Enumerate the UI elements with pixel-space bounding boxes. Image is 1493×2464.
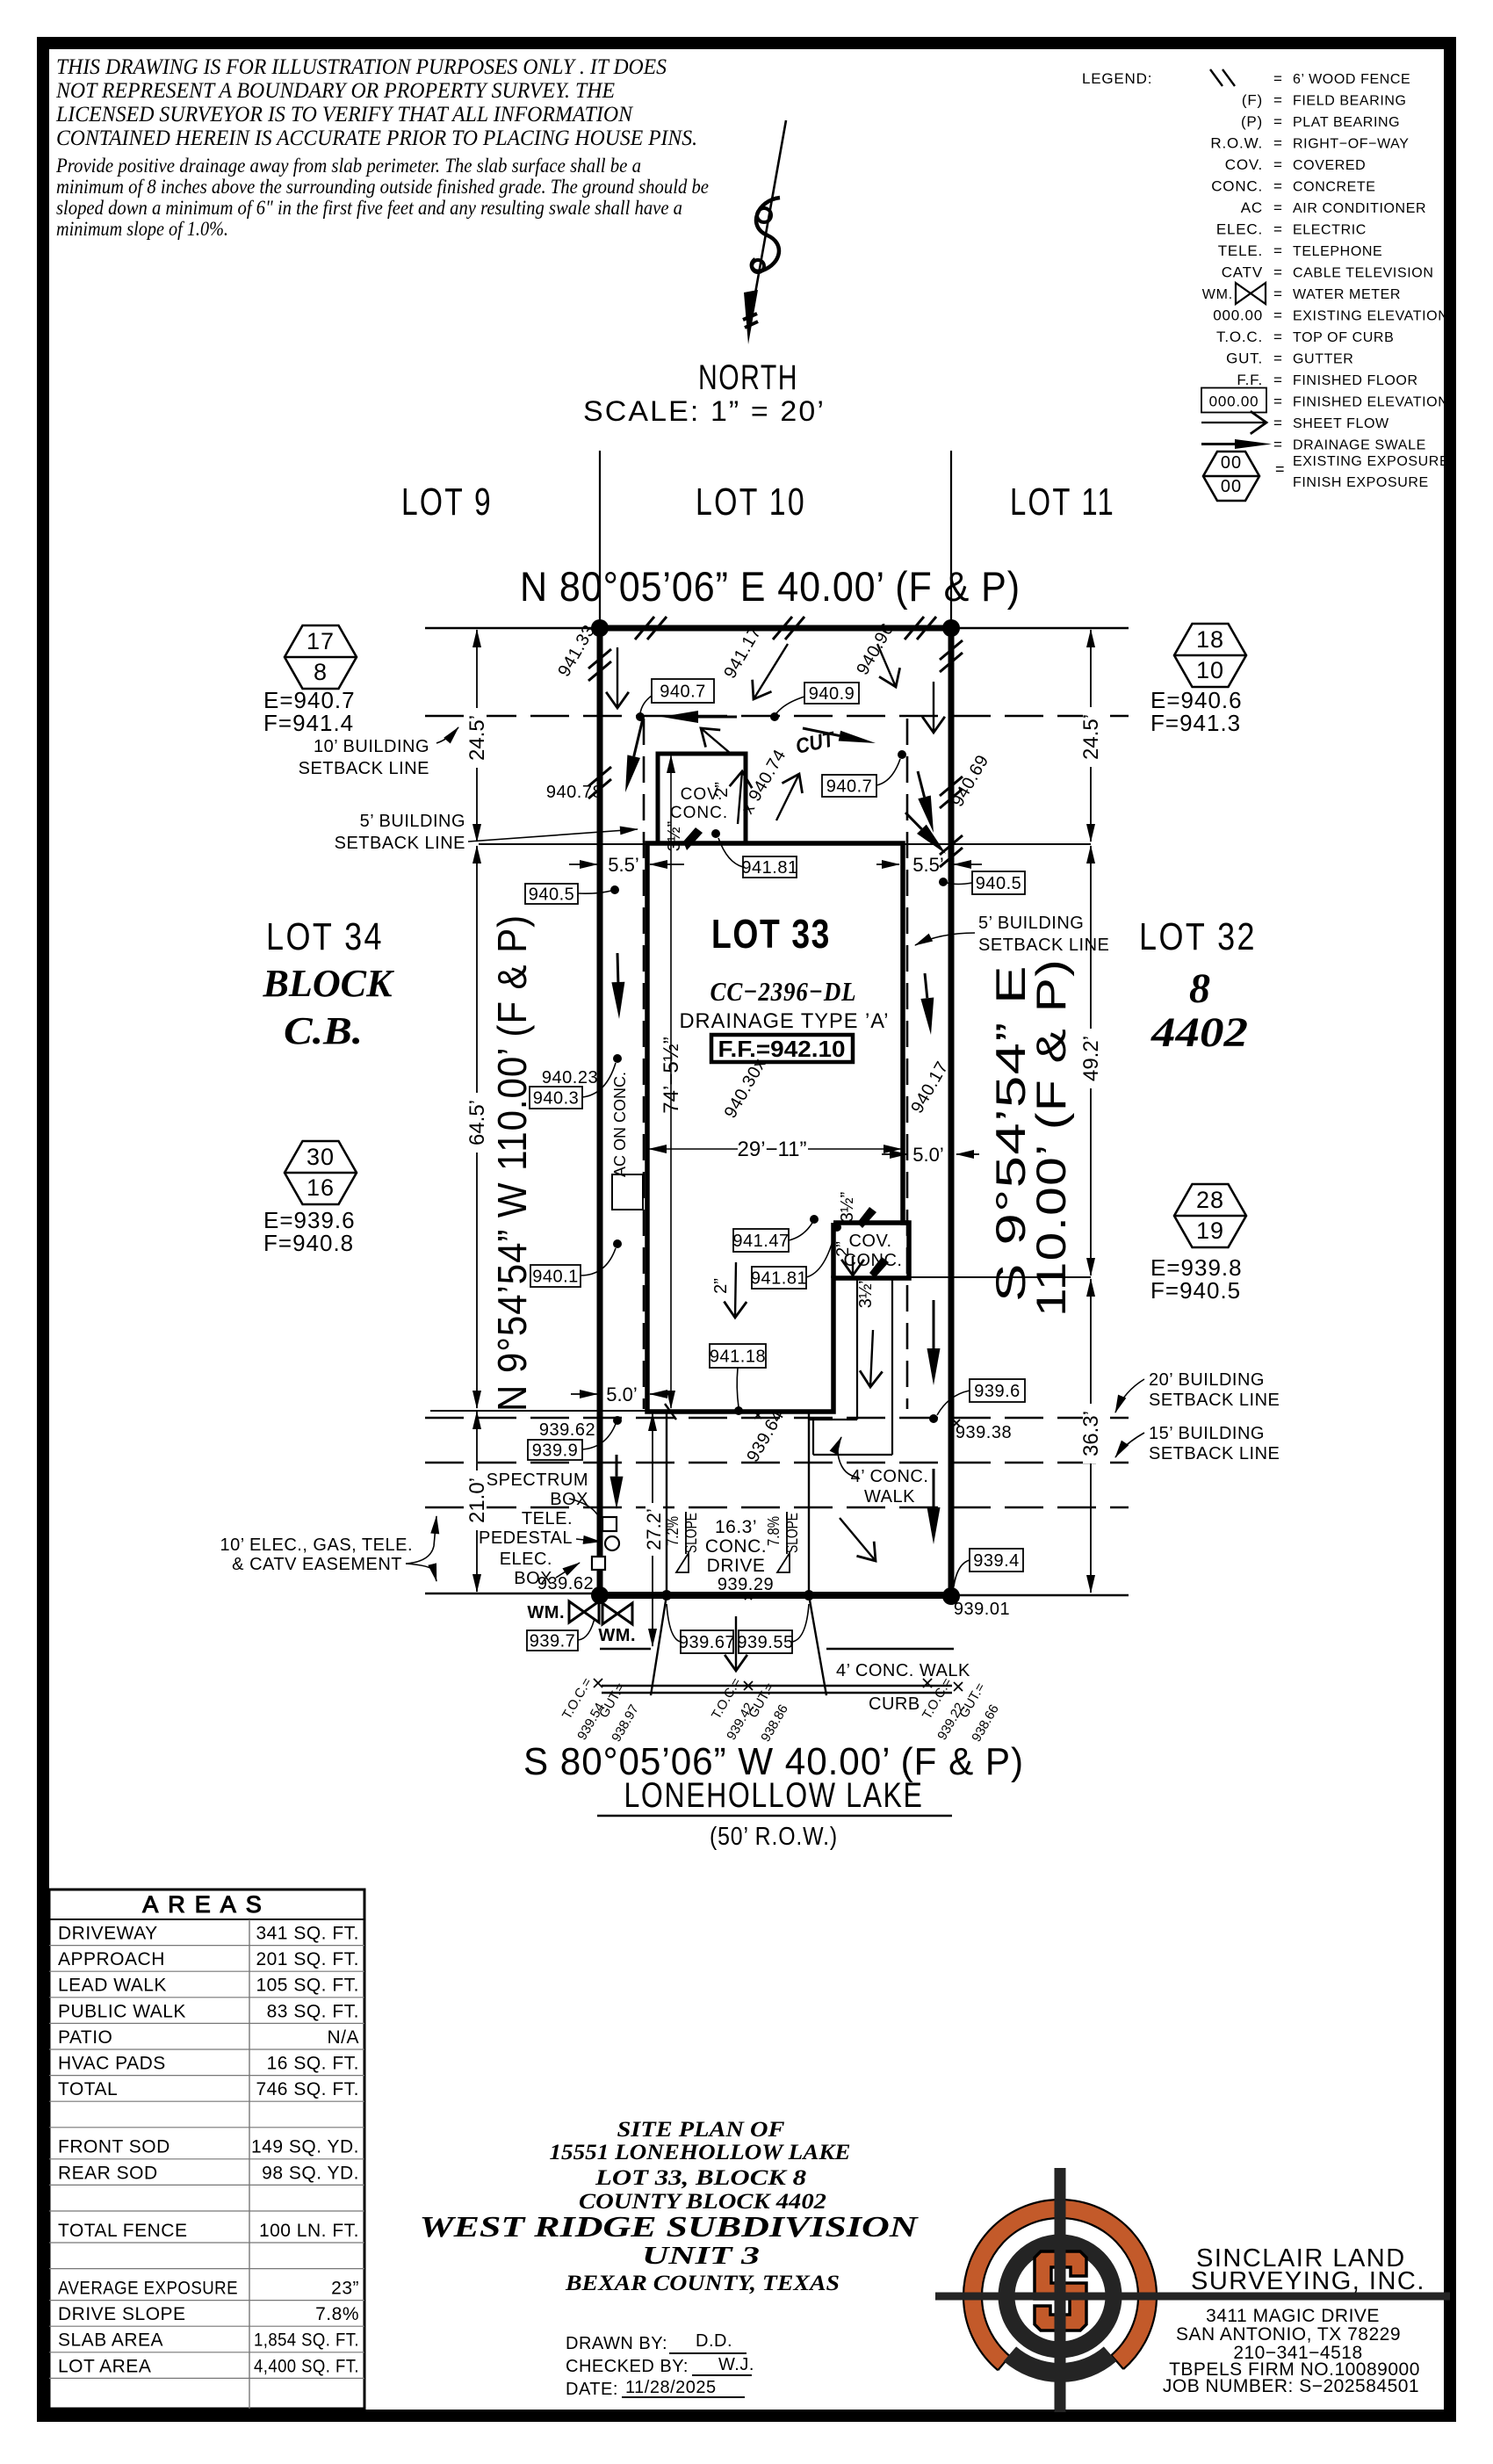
svg-text:TELE.: TELE. — [1218, 242, 1263, 259]
svg-text:WATER METER: WATER METER — [1293, 287, 1401, 302]
svg-text:NORTH: NORTH — [698, 358, 798, 397]
svg-text:DRAWN BY:: DRAWN BY: — [566, 2334, 667, 2353]
svg-text:AIR CONDITIONER: AIR CONDITIONER — [1293, 201, 1426, 216]
svg-text:WM.: WM. — [598, 1626, 636, 1645]
svg-text:ELEC.: ELEC. — [1216, 221, 1263, 238]
svg-text:2”: 2” — [711, 1278, 731, 1294]
svg-text:940.23: 940.23 — [542, 1068, 598, 1087]
svg-text:4,400 SQ. FT.: 4,400 SQ. FT. — [254, 2356, 359, 2376]
svg-text:CURB: CURB — [869, 1694, 920, 1714]
svg-text:4’ CONC. WALK: 4’ CONC. WALK — [836, 1661, 970, 1680]
svg-text:SETBACK LINE: SETBACK LINE — [978, 936, 1109, 955]
svg-text:940.7: 940.7 — [660, 683, 706, 702]
svg-text:00: 00 — [1221, 453, 1242, 473]
svg-text:2”: 2” — [712, 782, 732, 798]
svg-text:PATIO: PATIO — [58, 2027, 112, 2048]
svg-text:939.29: 939.29 — [718, 1575, 774, 1594]
svg-text:10’ ELEC., GAS, TELE.: 10’ ELEC., GAS, TELE. — [220, 1535, 413, 1555]
svg-text:PUBLIC WALK: PUBLIC WALK — [58, 2001, 186, 2021]
svg-text:C.B.: C.B. — [284, 1009, 363, 1052]
svg-text:=: = — [1275, 460, 1285, 478]
svg-text:DRIVE SLOPE: DRIVE SLOPE — [58, 2304, 186, 2324]
svg-text:DRAINAGE TYPE ’A’: DRAINAGE TYPE ’A’ — [680, 1009, 890, 1033]
svg-text:GUT.: GUT. — [1226, 350, 1263, 367]
svg-text:=: = — [1273, 415, 1282, 431]
svg-text:00: 00 — [1221, 477, 1242, 496]
svg-text:LONEHOLLOW LAKE: LONEHOLLOW LAKE — [624, 1776, 924, 1815]
svg-text:15’ BUILDING: 15’ BUILDING — [1149, 1424, 1265, 1443]
svg-text:3½”: 3½” — [665, 821, 684, 851]
svg-text:CHECKED BY:: CHECKED BY: — [566, 2357, 689, 2376]
svg-text:DRIVE: DRIVE — [707, 1556, 766, 1576]
svg-text:LEAD WALK: LEAD WALK — [58, 1976, 167, 1996]
svg-text:R.O.W.: R.O.W. — [1210, 135, 1263, 152]
svg-text:16: 16 — [307, 1174, 335, 1201]
svg-text:PEDESTAL: PEDESTAL — [479, 1528, 573, 1548]
svg-text:COV.: COV. — [848, 1232, 891, 1251]
svg-text:WM.: WM. — [1202, 287, 1233, 302]
svg-text:REAR SOD: REAR SOD — [58, 2163, 158, 2183]
svg-text:SURVEYING, INC.: SURVEYING, INC. — [1191, 2267, 1425, 2295]
svg-text:5’ BUILDING: 5’ BUILDING — [360, 812, 465, 831]
svg-text:minimum of 8 inches above the: minimum of 8 inches above the surroundin… — [56, 176, 709, 198]
svg-text:CONC.: CONC. — [705, 1536, 767, 1557]
svg-text:THIS DRAWING IS FOR ILLUSTRATI: THIS DRAWING IS FOR ILLUSTRATION PURPOSE… — [56, 55, 667, 79]
svg-text:=: = — [1273, 113, 1282, 130]
svg-text:746 SQ. FT.: 746 SQ. FT. — [256, 2079, 359, 2099]
svg-text:LEGEND:: LEGEND: — [1082, 70, 1152, 87]
svg-text:30: 30 — [307, 1144, 335, 1170]
svg-text:5.0’: 5.0’ — [912, 1144, 943, 1166]
svg-text:29’−11”: 29’−11” — [738, 1138, 807, 1161]
svg-text:LOT 9: LOT 9 — [401, 481, 493, 524]
svg-text:SITE PLAN OF: SITE PLAN OF — [617, 2118, 785, 2142]
svg-text:149 SQ. YD.: 149 SQ. YD. — [251, 2137, 359, 2157]
svg-text:SETBACK LINE: SETBACK LINE — [335, 834, 465, 853]
svg-text:=: = — [1273, 178, 1282, 195]
svg-text:F=940.8: F=940.8 — [263, 1230, 354, 1256]
svg-text:5.5’: 5.5’ — [912, 854, 943, 876]
svg-text:939.7: 939.7 — [530, 1632, 576, 1651]
svg-text:SLOPE: SLOPE — [783, 1513, 801, 1553]
svg-text:=: = — [1273, 394, 1282, 410]
svg-text:LOT 10: LOT 10 — [696, 481, 806, 524]
svg-text:NOT REPRESENT A BOUNDARY OR PR: NOT REPRESENT A BOUNDARY OR PROPERTY SUR… — [55, 79, 615, 103]
svg-text:SLOPE: SLOPE — [682, 1513, 700, 1553]
svg-text:7.8%: 7.8% — [765, 1516, 783, 1546]
svg-text:941.81: 941.81 — [741, 858, 797, 878]
svg-text:7.2%: 7.2% — [664, 1516, 682, 1546]
svg-text:=: = — [1273, 135, 1282, 152]
svg-text:36.3’: 36.3’ — [1079, 1411, 1103, 1456]
svg-text:(50’ R.O.W.): (50’ R.O.W.) — [710, 1823, 838, 1851]
svg-text:SHEET FLOW: SHEET FLOW — [1293, 416, 1389, 431]
svg-text:10: 10 — [1196, 657, 1224, 683]
svg-text:7.8%: 7.8% — [315, 2304, 359, 2324]
svg-text:1,854 SQ. FT.: 1,854 SQ. FT. — [254, 2330, 359, 2351]
svg-text:110.00’ (F & P): 110.00’ (F & P) — [1028, 958, 1074, 1317]
svg-text:939.9: 939.9 — [532, 1442, 579, 1461]
svg-text:=: = — [1273, 307, 1282, 324]
svg-text:F=940.5: F=940.5 — [1150, 1277, 1241, 1304]
svg-text:GUTTER: GUTTER — [1293, 352, 1353, 367]
svg-text:83 SQ. FT.: 83 SQ. FT. — [267, 2001, 359, 2021]
svg-text:940.5: 940.5 — [529, 885, 575, 905]
svg-text:WEST RIDGE SUBDIVISION: WEST RIDGE SUBDIVISION — [420, 2211, 920, 2244]
svg-text:8: 8 — [1189, 965, 1210, 1012]
svg-text:WM.: WM. — [527, 1603, 565, 1622]
svg-text:CC−2396−DL: CC−2396−DL — [710, 976, 857, 1007]
svg-text:27.2’: 27.2’ — [643, 1508, 665, 1550]
svg-text:EXISTING ELEVATION: EXISTING ELEVATION — [1293, 309, 1448, 324]
svg-text:=: = — [1273, 199, 1282, 216]
svg-text:23”: 23” — [331, 2279, 359, 2299]
svg-text:4’ CONC.: 4’ CONC. — [851, 1467, 929, 1486]
svg-text:5.0’: 5.0’ — [606, 1384, 637, 1405]
svg-text:939.6: 939.6 — [974, 1382, 1021, 1401]
svg-text:940.5: 940.5 — [976, 874, 1022, 893]
svg-text:64.5’: 64.5’ — [465, 1100, 489, 1145]
svg-text:939.67: 939.67 — [679, 1633, 735, 1652]
svg-text:6’ WOOD FENCE: 6’ WOOD FENCE — [1293, 72, 1410, 87]
svg-text:TOTAL: TOTAL — [58, 2079, 118, 2099]
svg-text:8: 8 — [314, 659, 328, 685]
svg-text:CONTAINED HEREIN IS ACCURATE P: CONTAINED HEREIN IS ACCURATE PRIOR TO PL… — [56, 126, 697, 150]
svg-text:LOT 33: LOT 33 — [711, 911, 831, 957]
svg-text:BEXAR COUNTY, TEXAS: BEXAR COUNTY, TEXAS — [565, 2272, 840, 2295]
svg-text:LOT 33, BLOCK 8: LOT 33, BLOCK 8 — [595, 2166, 807, 2190]
svg-text:941.18: 941.18 — [710, 1348, 766, 1367]
svg-text:CONCRETE: CONCRETE — [1293, 180, 1376, 195]
svg-text:& CATV EASEMENT: & CATV EASEMENT — [232, 1555, 402, 1574]
svg-text:DRAINAGE SWALE: DRAINAGE SWALE — [1293, 438, 1426, 453]
svg-text:BOX: BOX — [514, 1569, 552, 1588]
svg-text:F.F.=942.10: F.F.=942.10 — [718, 1036, 846, 1062]
svg-text:PLAT BEARING: PLAT BEARING — [1293, 115, 1400, 130]
svg-text:10’ BUILDING: 10’ BUILDING — [314, 737, 429, 756]
svg-text:AREAS: AREAS — [142, 1891, 271, 1918]
svg-text:FINISHED ELEVATION: FINISHED ELEVATION — [1293, 395, 1448, 410]
svg-text:19: 19 — [1196, 1218, 1224, 1244]
svg-text:15551 LONEHOLLOW LAKE: 15551 LONEHOLLOW LAKE — [550, 2141, 851, 2164]
svg-text:17: 17 — [307, 628, 335, 654]
svg-text:T.O.C.: T.O.C. — [1216, 329, 1263, 345]
svg-text:ELECTRIC: ELECTRIC — [1293, 223, 1367, 238]
svg-text:=: = — [1273, 285, 1282, 302]
svg-text:F.F.: F.F. — [1237, 372, 1263, 388]
svg-text:LOT 11: LOT 11 — [1010, 481, 1115, 524]
svg-text:TELEPHONE: TELEPHONE — [1293, 244, 1382, 259]
svg-text:18: 18 — [1196, 626, 1224, 653]
svg-text:COV.: COV. — [1225, 156, 1263, 173]
svg-text:=: = — [1273, 264, 1282, 281]
svg-text:COUNTY BLOCK 4402: COUNTY BLOCK 4402 — [579, 2190, 826, 2214]
svg-text:N 80°05’06” E 40.00’ (F & P): N 80°05’06” E 40.00’ (F & P) — [520, 563, 1021, 610]
svg-text:939.62: 939.62 — [539, 1420, 595, 1440]
svg-text:BLOCK: BLOCK — [262, 962, 394, 1005]
svg-text:000.00: 000.00 — [1213, 307, 1263, 324]
svg-text:20’ BUILDING: 20’ BUILDING — [1149, 1370, 1265, 1390]
svg-text:TELE.: TELE. — [522, 1509, 573, 1528]
svg-text:SAN ANTONIO, TX 78229: SAN ANTONIO, TX 78229 — [1176, 2324, 1401, 2345]
svg-text:(P): (P) — [1241, 113, 1263, 130]
svg-text:105 SQ. FT.: 105 SQ. FT. — [256, 1976, 359, 1996]
svg-text:LOT 32: LOT 32 — [1139, 915, 1257, 958]
svg-text:5.5’: 5.5’ — [608, 854, 638, 876]
svg-text:28: 28 — [1196, 1187, 1224, 1213]
svg-text:LOT 34: LOT 34 — [266, 915, 384, 958]
svg-text:LICENSED SURVEYOR IS TO VERIFY: LICENSED SURVEYOR IS TO VERIFY THAT ALL … — [55, 103, 633, 126]
svg-text:BOX: BOX — [550, 1490, 588, 1509]
svg-text:SLAB AREA: SLAB AREA — [58, 2330, 163, 2351]
svg-text:AC ON CONC.: AC ON CONC. — [611, 1072, 629, 1177]
svg-text:2”: 2” — [833, 1241, 853, 1257]
svg-text:FINISHED FLOOR: FINISHED FLOOR — [1293, 373, 1418, 388]
svg-text:=: = — [1273, 221, 1282, 238]
svg-text:=: = — [1273, 350, 1282, 367]
svg-text:3411 MAGIC DRIVE: 3411 MAGIC DRIVE — [1206, 2306, 1380, 2326]
svg-text:=: = — [1273, 242, 1282, 259]
svg-text:98 SQ. YD.: 98 SQ. YD. — [262, 2163, 359, 2183]
svg-text:939.4: 939.4 — [973, 1551, 1020, 1571]
svg-text:SETBACK LINE: SETBACK LINE — [299, 759, 429, 778]
svg-text:minimum slope of 1.0%.: minimum slope of 1.0%. — [56, 218, 228, 240]
svg-text:TOP OF CURB: TOP OF CURB — [1293, 330, 1394, 345]
svg-text:DRIVEWAY: DRIVEWAY — [58, 1924, 158, 1944]
svg-text:CABLE TELEVISION: CABLE TELEVISION — [1293, 266, 1433, 281]
svg-text:APPROACH: APPROACH — [58, 1949, 165, 1969]
svg-text:24.5’: 24.5’ — [1079, 714, 1103, 760]
svg-text:24.5’: 24.5’ — [465, 715, 489, 761]
svg-text:(F): (F) — [1242, 92, 1263, 109]
svg-text:939.55: 939.55 — [737, 1633, 793, 1652]
svg-text:WALK: WALK — [864, 1487, 915, 1507]
svg-text:COVERED: COVERED — [1293, 158, 1366, 173]
svg-text:341 SQ. FT.: 341 SQ. FT. — [256, 1924, 359, 1944]
svg-text:W.J.: W.J. — [718, 2355, 754, 2374]
svg-text:FINISH EXPOSURE: FINISH EXPOSURE — [1293, 475, 1429, 490]
svg-text:SETBACK LINE: SETBACK LINE — [1149, 1391, 1280, 1410]
svg-text:AC: AC — [1241, 199, 1263, 216]
svg-text:=: = — [1273, 437, 1282, 453]
svg-text:N/A: N/A — [327, 2027, 359, 2048]
svg-text:FIELD BEARING: FIELD BEARING — [1293, 94, 1407, 109]
svg-text:201 SQ. FT.: 201 SQ. FT. — [256, 1949, 359, 1969]
svg-text:16 SQ. FT.: 16 SQ. FT. — [267, 2054, 359, 2074]
svg-text:SPECTRUM: SPECTRUM — [487, 1470, 588, 1490]
svg-text:940.78: 940.78 — [546, 783, 602, 802]
svg-text:939.38: 939.38 — [956, 1423, 1012, 1442]
svg-text:=: = — [1273, 329, 1282, 345]
svg-text:100 LN. FT.: 100 LN. FT. — [259, 2221, 359, 2241]
svg-text:940.1: 940.1 — [532, 1268, 579, 1287]
svg-text:939.01: 939.01 — [954, 1600, 1010, 1619]
svg-text:RIGHT−OF−WAY: RIGHT−OF−WAY — [1293, 137, 1410, 152]
svg-text:CATV: CATV — [1222, 264, 1263, 281]
svg-text:N 9°54’54” W 110.00’ (F & P): N 9°54’54” W 110.00’ (F & P) — [489, 914, 535, 1412]
svg-text:CONC.: CONC. — [670, 804, 728, 822]
svg-text:940.3: 940.3 — [533, 1089, 580, 1109]
svg-text:F=941.4: F=941.4 — [263, 710, 354, 736]
svg-text:D.D.: D.D. — [696, 2331, 732, 2351]
svg-text:AVERAGE EXPOSURE: AVERAGE EXPOSURE — [58, 2279, 238, 2299]
svg-text:F=941.3: F=941.3 — [1150, 710, 1241, 736]
svg-text:ELEC.: ELEC. — [500, 1550, 552, 1569]
svg-text:Provide positive drainage away: Provide positive drainage away from slab… — [55, 155, 641, 177]
svg-text:5’ BUILDING: 5’ BUILDING — [978, 914, 1084, 933]
svg-text:16.3’: 16.3’ — [715, 1517, 757, 1537]
svg-text:000.00: 000.00 — [1209, 394, 1259, 410]
svg-text:HVAC PADS: HVAC PADS — [58, 2054, 166, 2074]
svg-text:TOTAL FENCE: TOTAL FENCE — [58, 2221, 187, 2241]
svg-text:UNIT 3: UNIT 3 — [642, 2242, 760, 2270]
svg-text:=: = — [1273, 92, 1282, 109]
svg-text:EXISTING EXPOSURE: EXISTING EXPOSURE — [1293, 454, 1449, 469]
svg-text:FRONT SOD: FRONT SOD — [58, 2137, 170, 2157]
svg-text:49.2’: 49.2’ — [1079, 1036, 1103, 1081]
svg-text:940.9: 940.9 — [809, 684, 855, 704]
svg-text:sloped down a minimum of 6" in: sloped down a minimum of 6" in the first… — [56, 197, 682, 219]
svg-text:4402: 4402 — [1150, 1009, 1248, 1056]
svg-text:3½”: 3½” — [838, 1192, 857, 1222]
svg-text:CONC.: CONC. — [1211, 178, 1263, 195]
svg-text:JOB NUMBER: S−202584501: JOB NUMBER: S−202584501 — [1163, 2376, 1419, 2396]
svg-text:SCALE: 1” = 20’: SCALE: 1” = 20’ — [583, 395, 826, 427]
svg-text:940.7: 940.7 — [826, 777, 873, 797]
svg-text:=: = — [1273, 372, 1282, 388]
svg-text:74’−5½”: 74’−5½” — [660, 1037, 683, 1113]
svg-text:=: = — [1273, 70, 1282, 87]
svg-text:=: = — [1273, 156, 1282, 173]
svg-text:DATE:: DATE: — [566, 2380, 618, 2399]
svg-text:LOT AREA: LOT AREA — [58, 2356, 151, 2376]
svg-text:3½”: 3½” — [856, 1278, 876, 1308]
svg-text:941.47: 941.47 — [732, 1232, 789, 1251]
svg-text:941.81: 941.81 — [751, 1269, 807, 1289]
svg-text:SETBACK LINE: SETBACK LINE — [1149, 1444, 1280, 1463]
svg-text:11/28/2025: 11/28/2025 — [625, 2378, 717, 2397]
